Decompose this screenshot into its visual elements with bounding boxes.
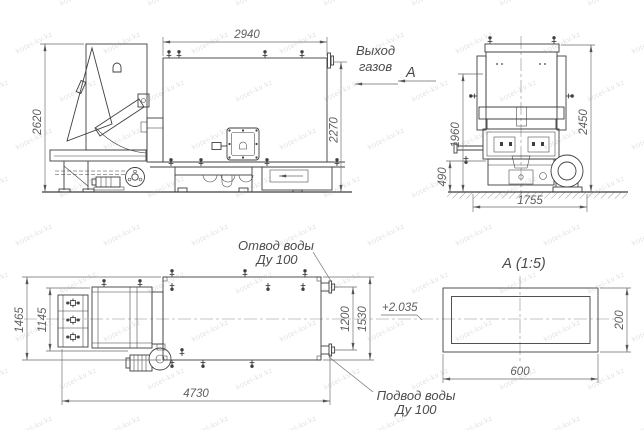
side-view-underframe	[150, 158, 345, 192]
plan-view-dimensions: 1465 1145 4730 1200 1530 +2.035	[14, 277, 422, 405]
gas-outlet-callout: Выход газов А	[355, 43, 436, 84]
dim-section-height: 200	[614, 310, 626, 331]
water-outlet-label-line1: Отвод воды	[238, 238, 314, 253]
dim-side-overall-height: 2620	[32, 109, 44, 136]
drawing-canvas: 2620 2940 2270 Выход газов А	[0, 0, 644, 430]
dim-front-overall-height: 2450	[578, 109, 590, 136]
side-view-platform-base	[50, 150, 146, 192]
leader-line	[329, 357, 373, 392]
dim-front-inner-height: 1960	[450, 122, 462, 148]
door-handle	[240, 142, 247, 149]
water-inlet-label-line2: Ду 100	[393, 402, 437, 417]
fan-scroll	[149, 348, 171, 370]
section-view-a: А (1:5) 600 200	[443, 256, 631, 383]
water-inlet-callout: Подвод воды Ду 100	[329, 357, 456, 417]
side-view-boiler-body	[141, 50, 334, 162]
plan-view-body	[163, 269, 335, 368]
side-view: 2620 2940 2270 Выход газов А	[32, 29, 436, 192]
dim-plan-inner-width: 1145	[37, 307, 49, 332]
vent-valve-icon	[177, 50, 182, 58]
dim-plan-right-span: 1530	[357, 306, 369, 332]
side-view-dimensions: 2620 2940 2270	[32, 29, 347, 192]
section-view-dimensions: 600 200	[443, 288, 631, 383]
dim-plan-length: 4730	[183, 388, 209, 400]
water-outlet-fitting	[321, 281, 335, 293]
elevation-mark-value: +2.035	[382, 302, 418, 314]
dim-front-base-height: 490	[437, 167, 449, 187]
blower-fan	[551, 155, 583, 187]
water-inlet-label-line1: Подвод воды	[377, 388, 456, 403]
water-inlet-fitting	[321, 344, 335, 356]
front-view: 1960 2450 490 1755	[437, 36, 628, 212]
dim-plan-overall-width: 1465	[14, 307, 26, 333]
gas-outlet-label-line2: газов	[359, 59, 392, 74]
dim-side-body-width: 2940	[233, 29, 260, 41]
front-view-machine	[454, 36, 583, 192]
duct-outer-wall	[443, 288, 598, 352]
flue-flange	[328, 53, 331, 68]
dim-section-width: 600	[510, 366, 530, 378]
dim-front-width: 1755	[517, 195, 543, 207]
side-view-access-door	[212, 128, 259, 160]
gas-outlet-label-line1: Выход	[356, 43, 395, 58]
drive-motor	[96, 177, 120, 187]
side-view-hopper	[67, 44, 149, 153]
section-view-title: А (1:5)	[501, 256, 546, 272]
section-mark-letter: А	[405, 65, 416, 81]
vent-valve-icon	[167, 50, 172, 58]
water-outlet-label-line2: Ду 100	[254, 252, 298, 267]
vent-valve-icon	[263, 50, 268, 58]
plan-view-stoker-mechanism	[58, 279, 171, 371]
duct-inner-wall	[452, 297, 591, 344]
dim-plan-pipe-span: 1200	[340, 306, 352, 332]
technical-drawing: 2620 2940 2270 Выход газов А	[0, 0, 644, 430]
dim-side-body-height: 2270	[329, 117, 341, 144]
vent-valve-icon	[300, 50, 305, 58]
water-outlet-callout: Отвод воды Ду 100	[238, 238, 331, 281]
